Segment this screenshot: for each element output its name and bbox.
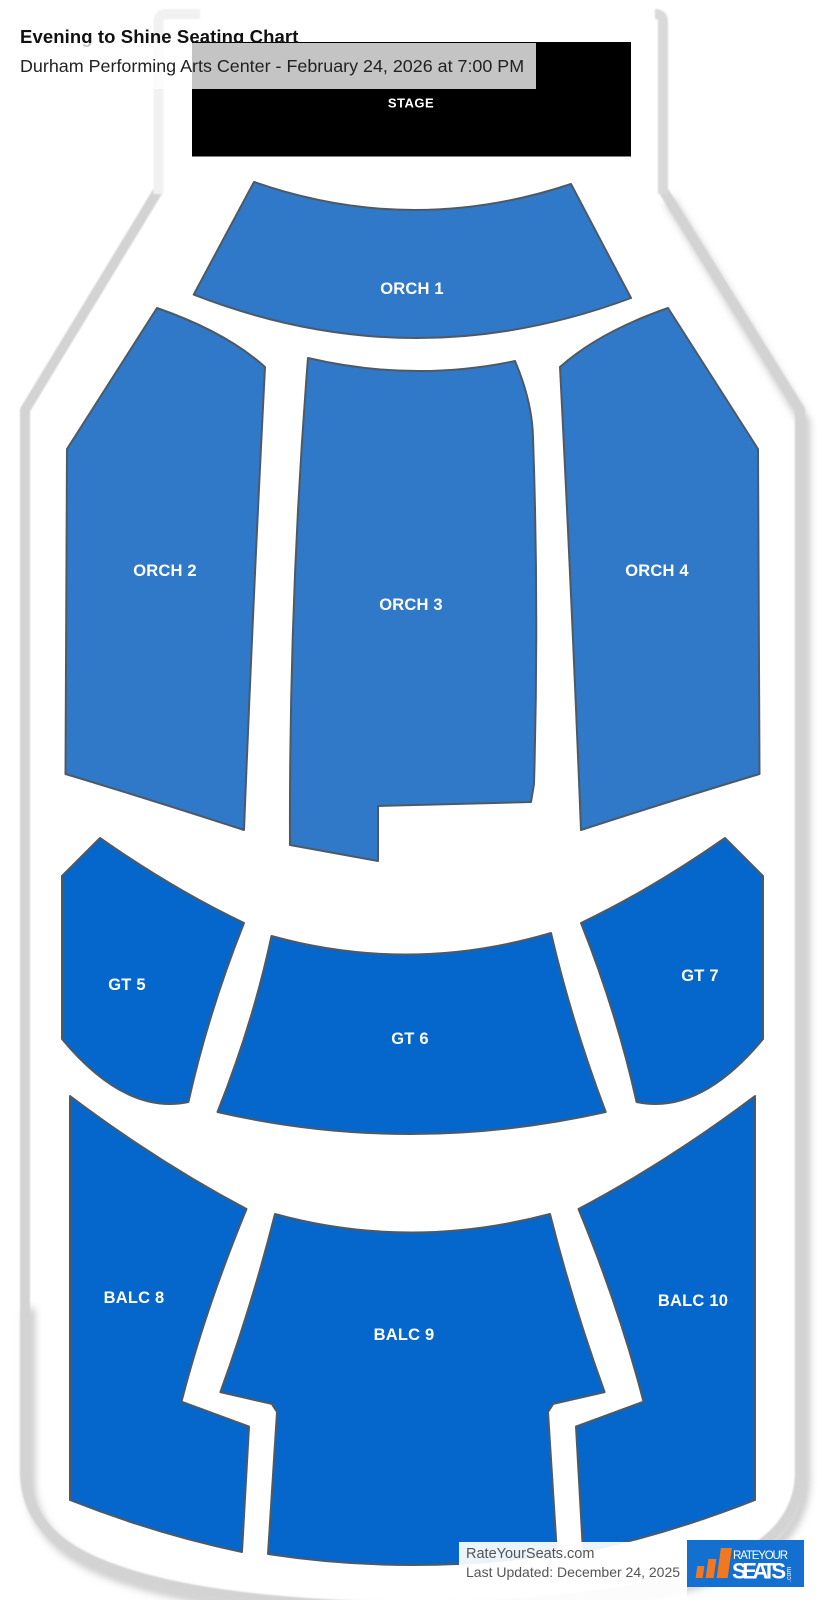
svg-text:GT 5: GT 5 xyxy=(108,976,145,994)
svg-text:ORCH 3: ORCH 3 xyxy=(379,596,443,614)
svg-text:.com: .com xyxy=(786,1567,793,1582)
svg-text:ORCH 4: ORCH 4 xyxy=(625,562,689,580)
svg-text:ORCH 2: ORCH 2 xyxy=(133,562,197,580)
svg-text:BALC 8: BALC 8 xyxy=(104,1289,165,1307)
svg-text:GT 6: GT 6 xyxy=(391,1030,428,1048)
svg-text:SEATS: SEATS xyxy=(732,1559,786,1584)
svg-text:STAGE: STAGE xyxy=(388,96,434,111)
svg-text:GT 7: GT 7 xyxy=(681,967,718,985)
svg-text:BALC 9: BALC 9 xyxy=(374,1326,435,1344)
svg-text:ORCH 1: ORCH 1 xyxy=(380,280,444,298)
svg-text:BALC 10: BALC 10 xyxy=(658,1292,728,1310)
